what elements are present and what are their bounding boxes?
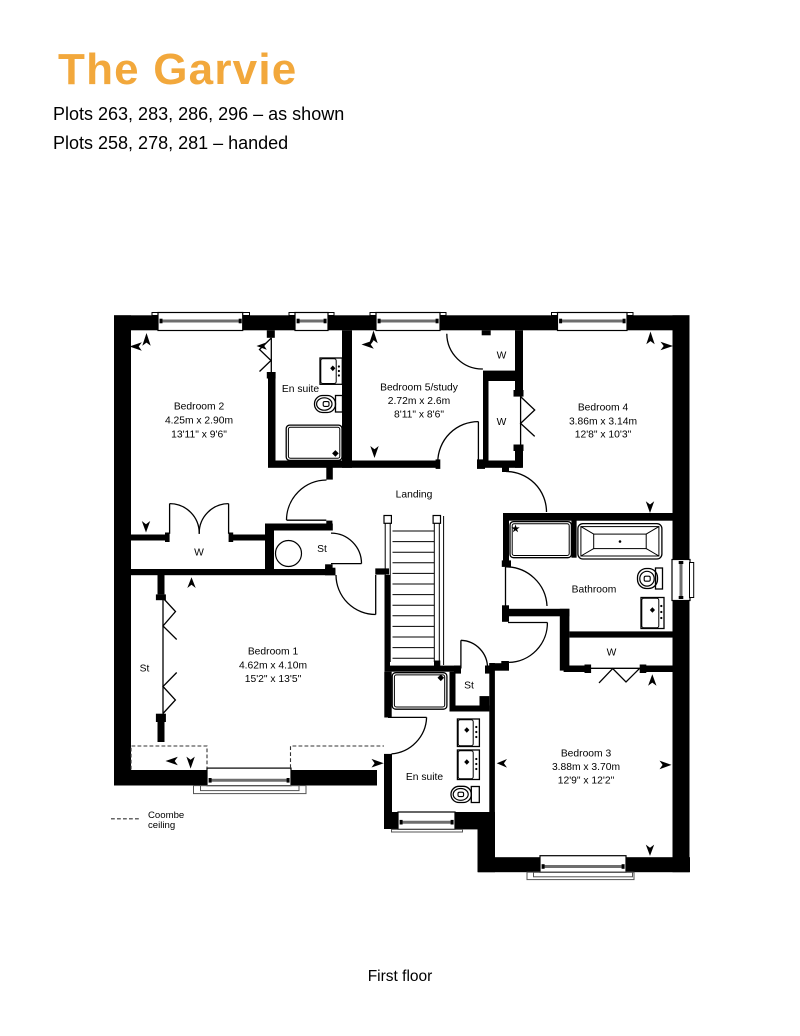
svg-text:13'11" x 9'6": 13'11" x 9'6" [171, 430, 227, 441]
svg-text:St: St [317, 544, 327, 555]
svg-text:St: St [464, 681, 474, 692]
svg-text:ceiling: ceiling [148, 820, 175, 831]
svg-text:Landing: Landing [396, 490, 433, 501]
svg-text:Bedroom 5/study: Bedroom 5/study [380, 383, 459, 394]
svg-text:En suite: En suite [406, 772, 443, 783]
svg-text:12'9" x 12'2": 12'9" x 12'2" [558, 776, 615, 787]
svg-text:3.86m x 3.14m: 3.86m x 3.14m [569, 417, 637, 428]
svg-text:W: W [497, 417, 507, 428]
svg-text:Bedroom 1: Bedroom 1 [248, 647, 299, 658]
svg-text:First floor: First floor [368, 968, 433, 985]
svg-text:St: St [140, 664, 150, 675]
svg-text:Plots 258, 278, 281 – handed: Plots 258, 278, 281 – handed [53, 133, 288, 153]
svg-text:Bedroom 2: Bedroom 2 [174, 402, 225, 413]
svg-text:4.62m x 4.10m: 4.62m x 4.10m [239, 661, 307, 672]
svg-text:Bathroom: Bathroom [572, 585, 617, 596]
svg-text:W: W [194, 548, 204, 559]
svg-text:The Garvie: The Garvie [58, 45, 297, 94]
svg-text:En suite: En suite [282, 384, 319, 395]
svg-text:W: W [497, 351, 507, 362]
svg-text:Bedroom 4: Bedroom 4 [578, 403, 629, 414]
svg-text:Plots 263, 283, 286, 296 – as: Plots 263, 283, 286, 296 – as shown [53, 104, 344, 124]
svg-text:3.88m x 3.70m: 3.88m x 3.70m [552, 762, 620, 773]
svg-text:W: W [607, 648, 617, 659]
svg-text:Bedroom 3: Bedroom 3 [561, 749, 612, 760]
svg-text:12'8" x 10'3": 12'8" x 10'3" [575, 430, 632, 441]
svg-text:15'2" x 13'5": 15'2" x 13'5" [245, 674, 302, 685]
svg-text:2.72m x 2.6m: 2.72m x 2.6m [388, 396, 450, 407]
svg-text:8'11" x 8'6": 8'11" x 8'6" [394, 410, 444, 421]
svg-text:4.25m x 2.90m: 4.25m x 2.90m [165, 416, 233, 427]
